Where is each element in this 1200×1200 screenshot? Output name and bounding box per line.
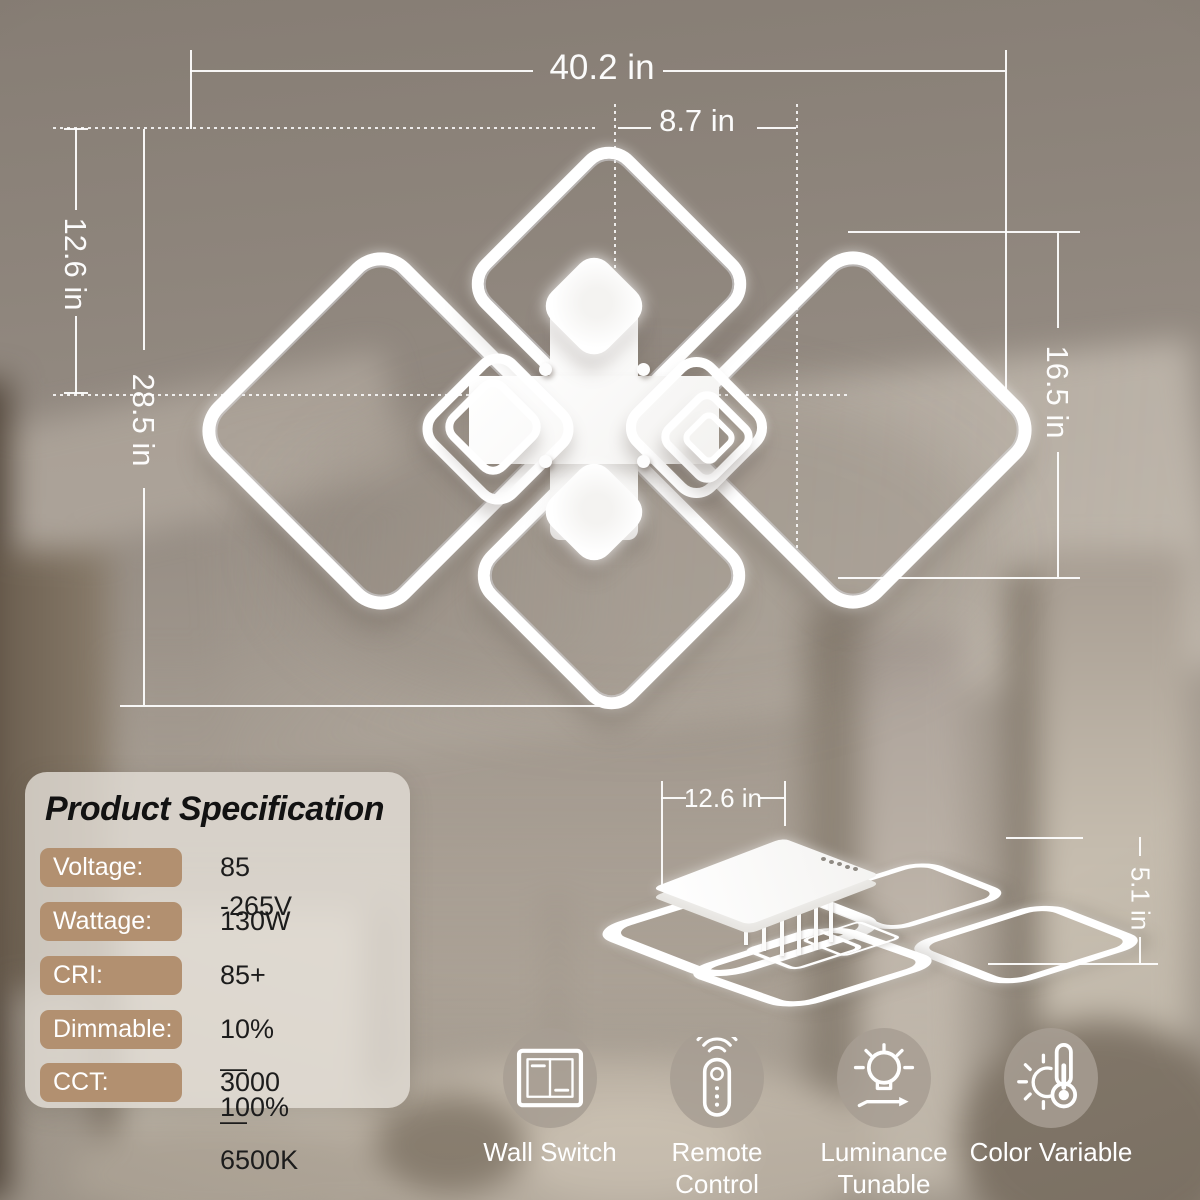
spec-value-dimmable: 10%—100% [220,1010,289,1049]
feature-label: LuminanceTunable [799,1136,969,1200]
spec-value-cri: 85+ [220,956,266,995]
spec-label-wattage: Wattage: [40,902,182,941]
spec-value-voltage: 85 -265V [220,848,292,887]
spec-title: Product Specification [45,790,384,829]
product-infographic: 40.2 in 8.7 in 12.6 in 28.5 in 16.5 in [0,0,1200,1200]
spec-value-wattage: 130W [220,902,291,941]
feature-label: Color Variable [966,1136,1136,1168]
wall-switch-icon [503,1028,597,1128]
luminance-tunable-icon [837,1028,931,1128]
remote-control-icon [670,1028,764,1128]
product-specification-panel: Product Specification Voltage: 85 -265V … [25,772,410,1108]
spec-label-cct: CCT: [40,1063,182,1102]
feature-label: Wall Switch [465,1136,635,1168]
spec-label-cri: CRI: [40,956,182,995]
feature-label: RemoteControl [632,1136,802,1200]
spec-label-voltage: Voltage: [40,848,182,887]
color-variable-icon [1004,1028,1098,1128]
spec-label-dimmable: Dimmable: [40,1010,182,1049]
spec-value-cct: 3000—6500K [220,1063,298,1102]
